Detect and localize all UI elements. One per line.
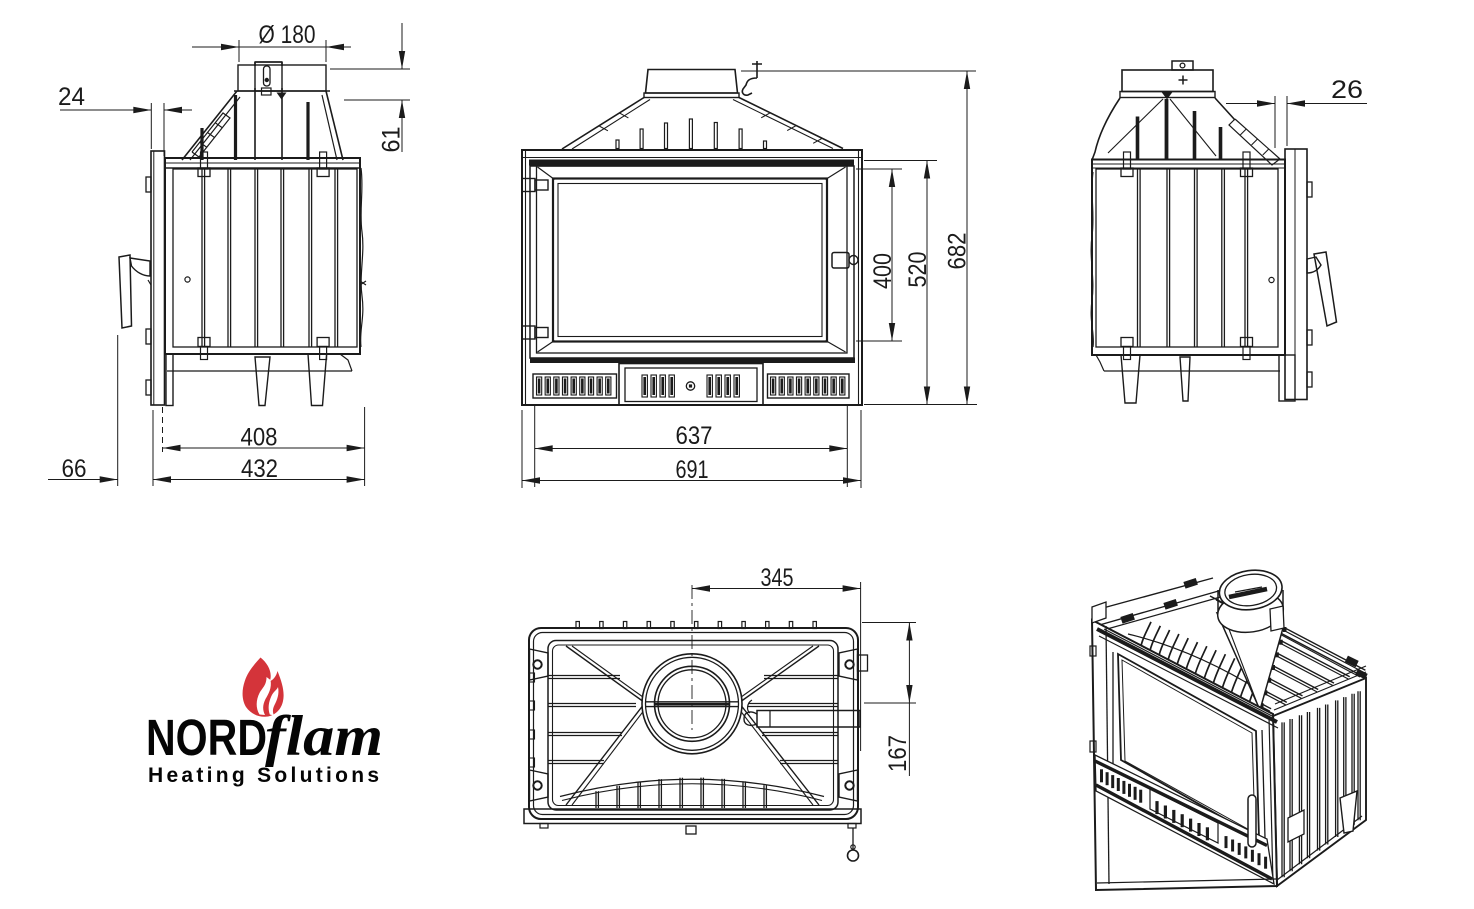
svg-text:Heating Solutions: Heating Solutions [148, 764, 379, 787]
svg-text:26: 26 [1331, 76, 1363, 104]
svg-text:682: 682 [944, 233, 972, 270]
svg-text:432: 432 [241, 455, 278, 483]
svg-text:167: 167 [884, 735, 912, 772]
svg-text:Ø 180: Ø 180 [259, 21, 316, 49]
svg-text:345: 345 [761, 564, 794, 592]
svg-text:637: 637 [676, 422, 713, 450]
svg-text:66: 66 [62, 455, 87, 483]
svg-text:691: 691 [676, 456, 709, 484]
svg-text:520: 520 [904, 252, 932, 288]
svg-text:24: 24 [58, 83, 85, 111]
svg-text:400: 400 [869, 253, 897, 289]
svg-text:NORD: NORD [146, 709, 267, 766]
svg-text:408: 408 [241, 424, 278, 452]
svg-text:flam: flam [265, 705, 383, 768]
svg-text:61: 61 [378, 127, 406, 153]
